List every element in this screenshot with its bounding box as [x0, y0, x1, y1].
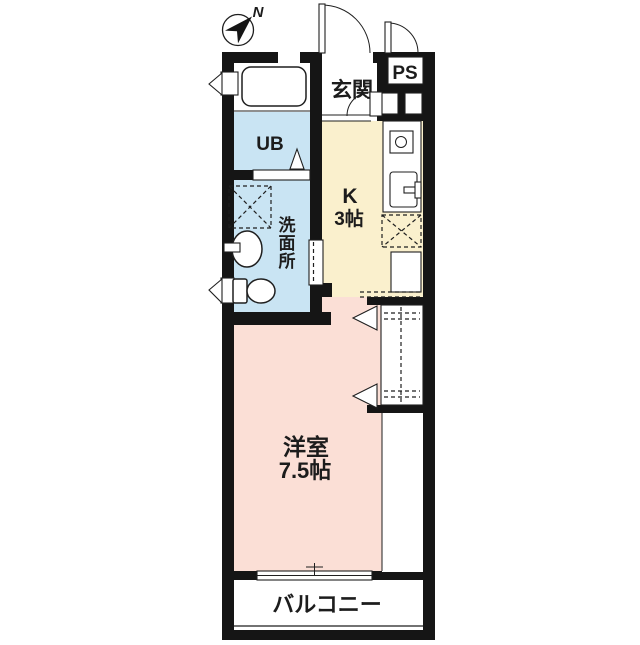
wall-segment	[222, 302, 234, 640]
toilet-tank	[233, 279, 247, 303]
western-room: 洋室 7.5帖	[279, 434, 332, 483]
washroom-label-char: 所	[279, 252, 296, 271]
compass-north-label: N	[253, 4, 265, 21]
sink-tap-handle-icon	[415, 182, 421, 198]
bathtub	[242, 67, 306, 106]
wall-segment	[222, 52, 234, 72]
compass: N	[223, 4, 265, 46]
storage-box	[391, 252, 421, 292]
floor-plan-page: N PS 玄関 UB 洗 面	[0, 0, 640, 640]
room-label: 洋室	[283, 434, 329, 460]
entrance-label: 玄関	[331, 78, 373, 102]
entrance-door-swing-arc	[322, 5, 370, 53]
kitchen-size-label: 3帖	[334, 207, 364, 230]
closet-wall-top	[367, 297, 423, 305]
compass-needle-icon	[225, 17, 252, 44]
side-alcove	[382, 413, 423, 572]
ps-door	[385, 22, 418, 53]
ps-door-leaf	[385, 22, 391, 53]
interior-door-leaf	[370, 92, 382, 116]
washroom-label-char: 洗	[279, 215, 296, 235]
meter-box	[405, 93, 422, 114]
meter-box	[381, 93, 398, 114]
washroom-label-char: 面	[279, 234, 296, 253]
vent-arrow-icon	[209, 73, 222, 95]
floor-plan: N PS 玄関 UB 洗 面	[0, 0, 640, 640]
room-size-label: 7.5帖	[279, 458, 332, 483]
unit-bath-label: UB	[256, 134, 283, 155]
wall-segment	[234, 170, 253, 180]
bath-door	[253, 170, 310, 180]
entrance-hall: 玄関	[322, 78, 382, 121]
toilet-bowl	[247, 279, 275, 303]
wall-segment	[310, 63, 322, 240]
stove	[390, 131, 413, 153]
wall-segment	[222, 630, 435, 640]
balcony-label: バルコニー	[272, 592, 382, 617]
vent-opening	[221, 278, 234, 303]
kitchen-label: K	[342, 185, 357, 208]
closet-box	[381, 305, 423, 405]
wall-segment	[372, 571, 435, 580]
wall-segment	[423, 52, 435, 640]
washbasin-tap-icon	[224, 243, 240, 252]
vent-opening	[221, 72, 238, 95]
wall-segment	[300, 52, 322, 63]
entrance-door-leaf	[319, 4, 325, 53]
wall-segment	[222, 571, 257, 580]
entrance-door	[319, 4, 370, 53]
wall-segment	[234, 312, 331, 325]
washroom-door-opening	[309, 240, 323, 285]
pipe-space-label: PS	[392, 63, 417, 84]
vent-arrow-icon	[209, 279, 222, 303]
ps-door-swing-arc	[388, 23, 418, 53]
